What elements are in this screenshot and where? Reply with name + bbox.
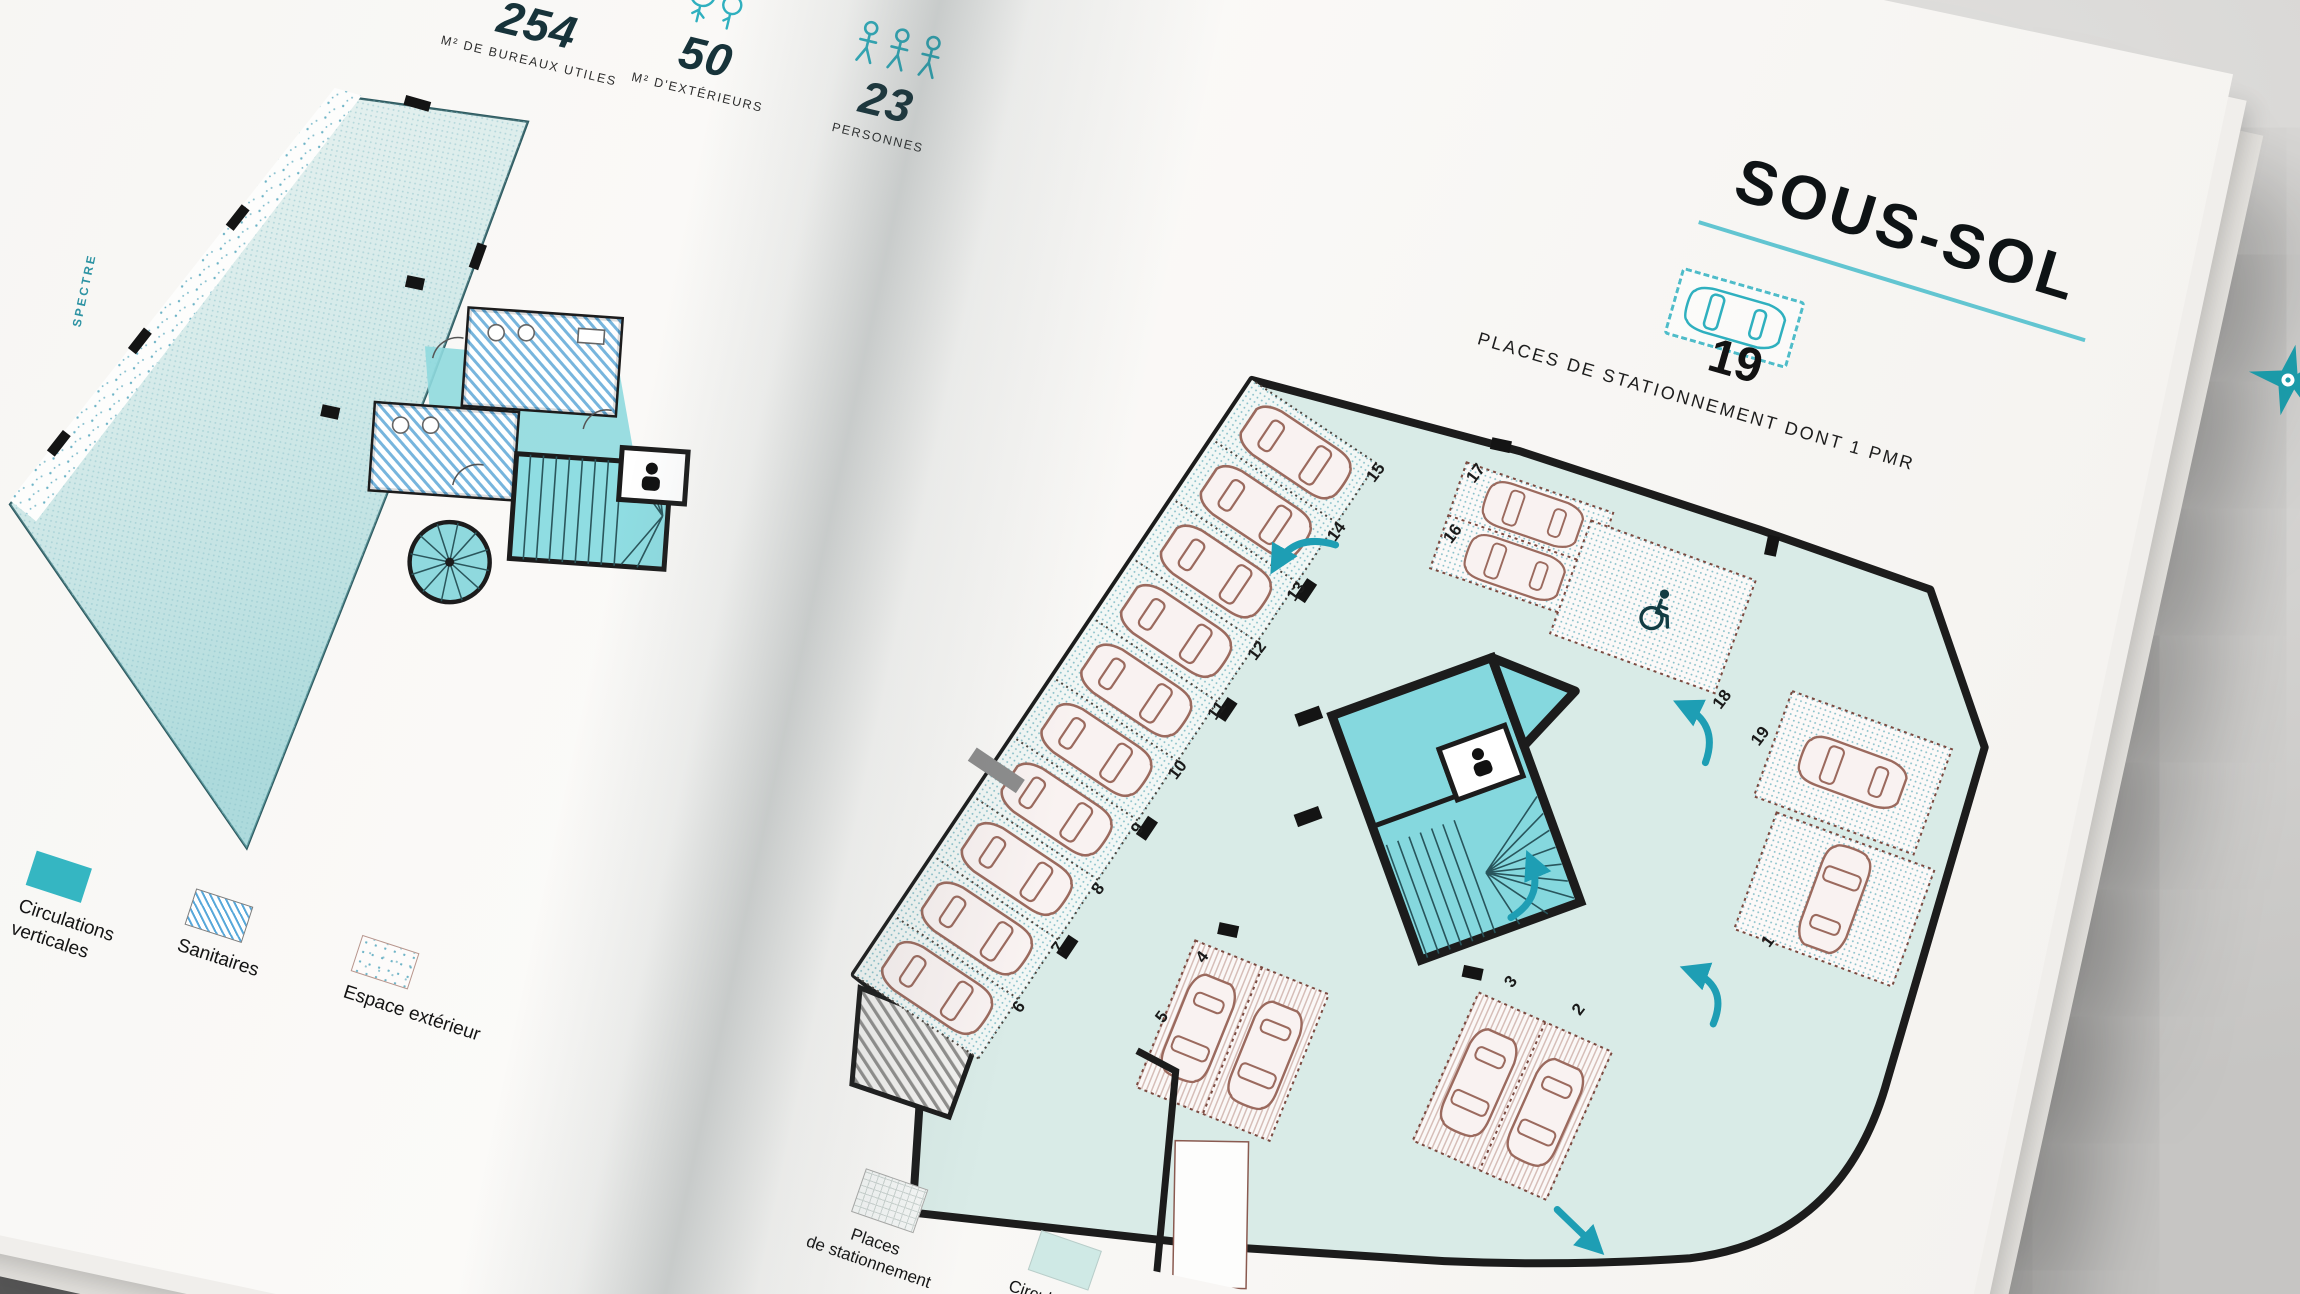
stat-bureaux: 254 M² DE BUREAUX UTILES bbox=[440, 0, 631, 89]
swatch-circulations bbox=[26, 851, 92, 903]
sanitaires-room-1 bbox=[463, 309, 621, 415]
brochure-photo: SPECTRE 254 M² DE BUREAUX UTILES 50 M² D… bbox=[0, 0, 2300, 1294]
legend-espace-exterieur: Espace extérieur bbox=[340, 935, 498, 1047]
legend-sanitaires: Sanitaires bbox=[174, 888, 277, 982]
people-icon bbox=[847, 15, 952, 84]
brochure-spread: SPECTRE 254 M² DE BUREAUX UTILES 50 M² D… bbox=[0, 0, 2233, 1294]
stat-exterieurs-value: 50 bbox=[675, 28, 737, 85]
legend-sanitaires-label: Sanitaires bbox=[174, 934, 262, 983]
legend-espace-label: Espace extérieur bbox=[340, 981, 483, 1048]
swatch-sanitaires bbox=[185, 888, 254, 943]
spiral-stair bbox=[402, 515, 497, 610]
stat-personnes-value: 23 bbox=[855, 73, 917, 130]
legend-circulations: Circulations verticales bbox=[8, 851, 131, 971]
elevator bbox=[619, 448, 688, 504]
floor-plan-left bbox=[0, 19, 841, 979]
stat-personnes: 23 PERSONNES bbox=[830, 15, 952, 156]
parking-count: 19 bbox=[1703, 332, 1768, 393]
stat-exterieurs: 50 M² D'EXTÉRIEURS bbox=[630, 0, 789, 115]
swatch-espace-exterieur bbox=[351, 935, 420, 990]
sanitaires-room-2 bbox=[370, 403, 518, 499]
